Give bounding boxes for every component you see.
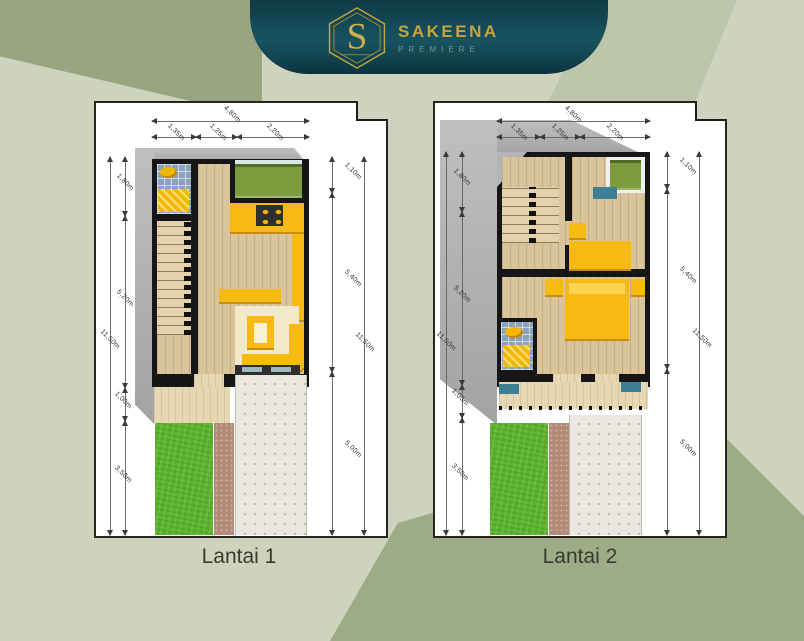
caption-lantai-1: Lantai 1 bbox=[142, 545, 336, 569]
dim-line bbox=[152, 137, 196, 138]
balcony-railing bbox=[499, 406, 648, 410]
toilet bbox=[505, 327, 523, 338]
green-void bbox=[610, 160, 641, 190]
hall-floor bbox=[157, 335, 191, 374]
dim-label: 4,80m bbox=[218, 100, 247, 129]
dim-label: 2,20m bbox=[261, 118, 290, 147]
dim-line-right-total bbox=[699, 152, 700, 535]
coffee-table-top bbox=[254, 323, 267, 343]
caption-lantai-2: Lantai 2 bbox=[483, 545, 677, 569]
floorplan-panel-lantai-2: 4,80m 1,35m 1,25m 2,20m 11,50m 1,80m 5,2… bbox=[433, 101, 727, 538]
dim-line bbox=[667, 189, 668, 369]
floorplan-panel-lantai-1: 4,80m 1,35m 1,25m 2,20m 11,50m 1,80m 5,2… bbox=[94, 101, 388, 538]
window-glass bbox=[242, 367, 262, 372]
garden-grass bbox=[490, 423, 548, 535]
stair-tread-marks bbox=[529, 187, 536, 243]
brand-name: SAKEENA bbox=[398, 22, 499, 42]
bed-single bbox=[235, 164, 302, 198]
shower-tray bbox=[158, 189, 189, 212]
balcony-accent-right bbox=[621, 382, 641, 392]
garden-grass bbox=[155, 423, 213, 535]
page: { "brand": { "logo_letter": "S", "name":… bbox=[0, 0, 804, 641]
shower-tray bbox=[503, 345, 530, 367]
dim-label: 3,50m bbox=[109, 460, 138, 489]
door-opening bbox=[194, 374, 224, 387]
terrace-floor bbox=[154, 387, 230, 423]
dim-line bbox=[237, 137, 309, 138]
chair bbox=[569, 223, 586, 240]
door-opening bbox=[595, 374, 619, 382]
dim-line bbox=[196, 137, 237, 138]
panel-corner-notch bbox=[356, 101, 388, 121]
balcony-accent-left bbox=[499, 384, 519, 394]
nightstand-right bbox=[631, 279, 645, 297]
brand-text-block: SAKEENA PREMIERE bbox=[398, 22, 499, 54]
corridor-floor bbox=[198, 164, 230, 203]
dim-label: 11,50m bbox=[351, 328, 380, 357]
bench bbox=[219, 289, 281, 304]
garden-path bbox=[214, 423, 234, 535]
logo-letter: S bbox=[347, 17, 368, 58]
toilet bbox=[160, 167, 177, 178]
stair-tread-marks bbox=[184, 221, 191, 335]
dim-line bbox=[667, 152, 668, 189]
garden-path bbox=[549, 423, 569, 535]
planter bbox=[593, 187, 617, 199]
dim-label: 1,25m bbox=[204, 118, 233, 147]
hexagon-logo-icon: S bbox=[326, 5, 388, 71]
desk bbox=[569, 241, 631, 271]
window-glass bbox=[271, 367, 291, 372]
brand-tagline: PREMIERE bbox=[398, 45, 499, 54]
stove bbox=[256, 205, 283, 226]
dim-line bbox=[667, 369, 668, 535]
carport-paving bbox=[235, 375, 307, 535]
carport-paving bbox=[569, 415, 642, 535]
panel-corner-notch bbox=[695, 101, 727, 121]
dim-line bbox=[332, 372, 333, 535]
brand-banner: S SAKEENA PREMIERE bbox=[250, 0, 608, 74]
dim-line-top-total bbox=[497, 121, 650, 122]
dim-label: 3,50m bbox=[446, 458, 475, 487]
nightstand-left bbox=[545, 279, 563, 297]
dim-label: 11,50m bbox=[688, 324, 717, 353]
dim-line-top-total bbox=[152, 121, 309, 122]
dim-line bbox=[332, 193, 333, 372]
door-opening bbox=[553, 374, 581, 382]
dim-line bbox=[332, 157, 333, 193]
dim-label: 1,35m bbox=[162, 118, 191, 147]
bed-pillows bbox=[569, 283, 625, 294]
